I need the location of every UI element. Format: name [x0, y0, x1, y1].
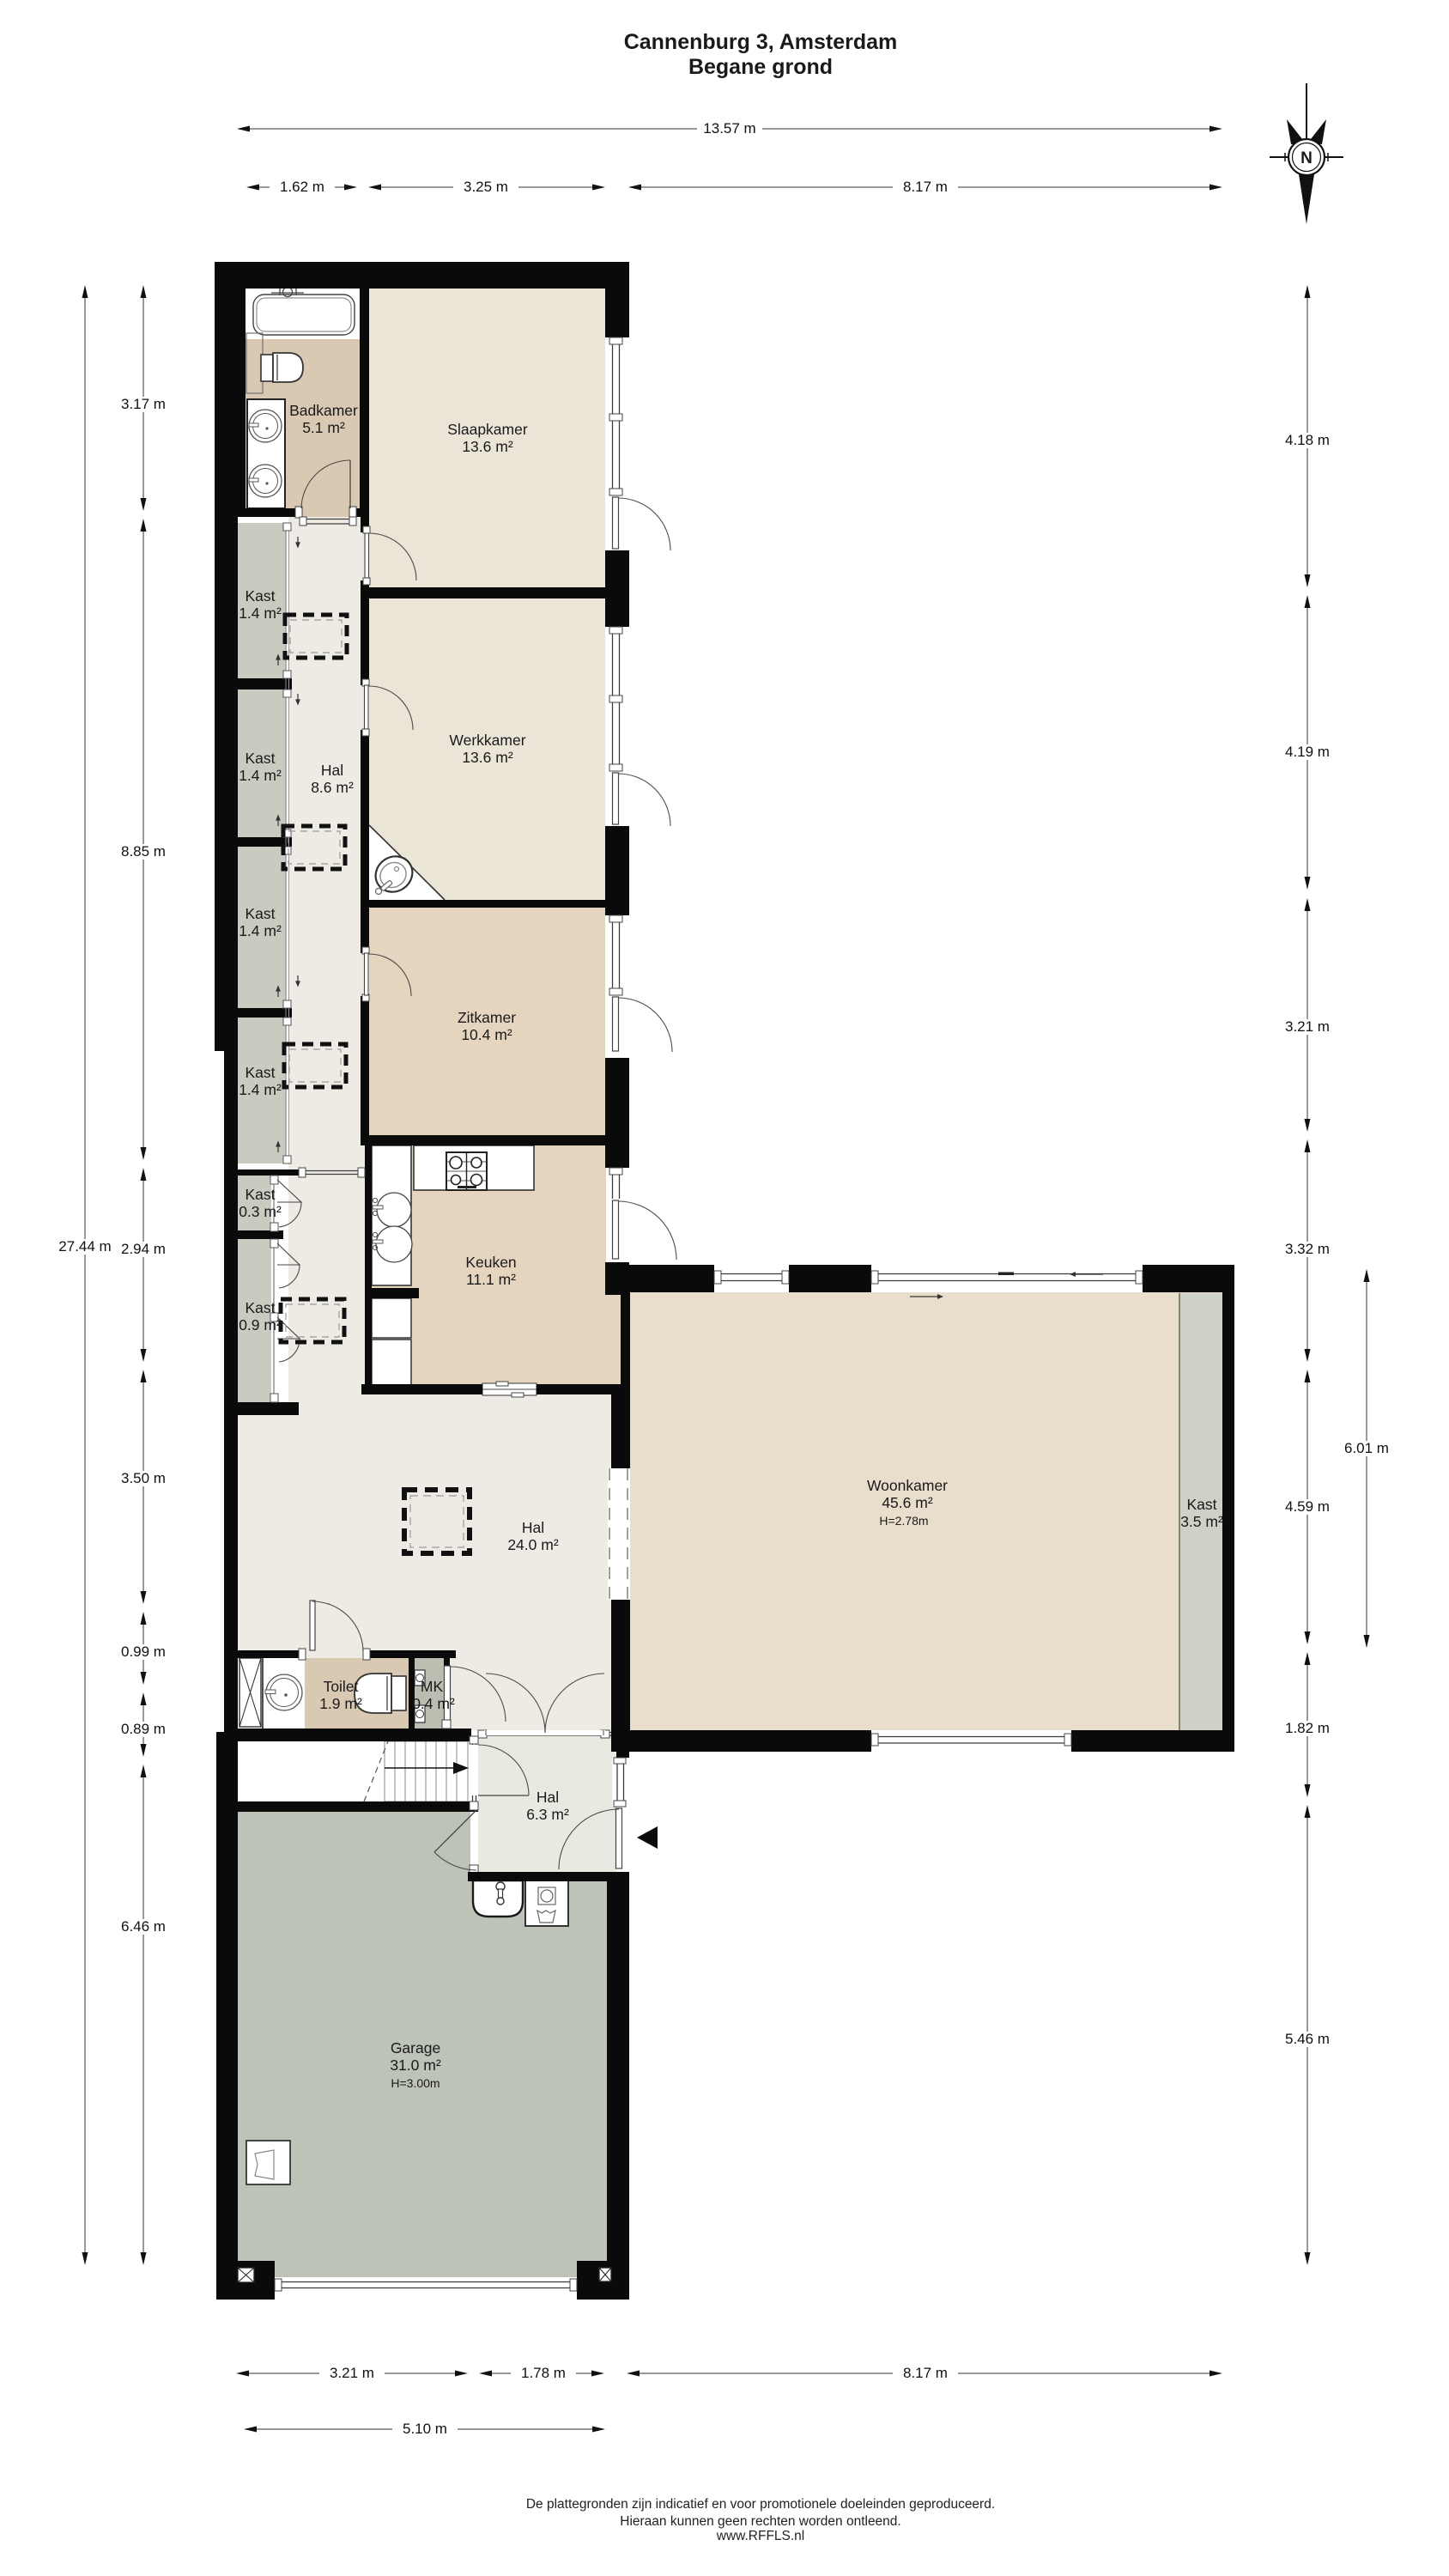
svg-text:Slaapkamer: Slaapkamer	[447, 421, 528, 438]
svg-text:5.10 m: 5.10 m	[403, 2421, 447, 2437]
svg-text:11.1 m²: 11.1 m²	[466, 1271, 516, 1288]
svg-text:1.9 m²: 1.9 m²	[319, 1695, 362, 1712]
svg-text:N: N	[1300, 149, 1313, 167]
svg-text:Woonkamer: Woonkamer	[867, 1477, 948, 1494]
svg-text:8.17 m: 8.17 m	[903, 2365, 948, 2381]
svg-text:Garage: Garage	[391, 2039, 440, 2057]
svg-text:8.6 m²: 8.6 m²	[311, 779, 354, 796]
svg-text:8.85 m: 8.85 m	[121, 843, 166, 860]
svg-text:Hal: Hal	[522, 1519, 544, 1536]
svg-text:De plattegronden zijn indicati: De plattegronden zijn indicatief en voor…	[526, 2497, 995, 2512]
svg-text:1.78 m: 1.78 m	[521, 2365, 566, 2381]
svg-text:3.25 m: 3.25 m	[464, 179, 508, 195]
svg-text:13.6 m²: 13.6 m²	[462, 438, 512, 455]
svg-text:5.46 m: 5.46 m	[1285, 2031, 1330, 2047]
svg-text:Cannenburg 3, Amsterdam: Cannenburg 3, Amsterdam	[624, 30, 898, 54]
svg-text:13.6 m²: 13.6 m²	[462, 749, 512, 766]
svg-text:Kast: Kast	[245, 1186, 275, 1203]
svg-text:Toilet: Toilet	[324, 1678, 359, 1695]
svg-text:2.94 m: 2.94 m	[121, 1241, 166, 1257]
svg-text:3.5 m²: 3.5 m²	[1180, 1513, 1223, 1530]
svg-text:3.21 m: 3.21 m	[330, 2365, 374, 2381]
svg-text:Kast: Kast	[245, 1064, 275, 1081]
svg-text:13.57 m: 13.57 m	[703, 120, 755, 137]
svg-text:8.17 m: 8.17 m	[903, 179, 948, 195]
svg-text:Begane grond: Begane grond	[688, 55, 833, 79]
svg-text:0.99 m: 0.99 m	[121, 1643, 166, 1660]
svg-text:MK: MK	[421, 1678, 444, 1695]
svg-text:4.18 m: 4.18 m	[1285, 432, 1330, 448]
svg-text:3.21 m: 3.21 m	[1285, 1018, 1330, 1035]
svg-text:0.4 m²: 0.4 m²	[412, 1695, 455, 1712]
svg-text:0.3 m²: 0.3 m²	[239, 1203, 282, 1220]
svg-text:27.44 m: 27.44 m	[58, 1238, 111, 1255]
svg-text:Werkkamer: Werkkamer	[449, 732, 525, 749]
svg-text:1.4 m²: 1.4 m²	[239, 605, 282, 622]
svg-text:6.3 m²: 6.3 m²	[526, 1806, 569, 1823]
svg-text:31.0 m²: 31.0 m²	[390, 2057, 440, 2074]
svg-text:Keuken: Keuken	[465, 1254, 516, 1271]
svg-text:4.19 m: 4.19 m	[1285, 744, 1330, 760]
svg-text:3.32 m: 3.32 m	[1285, 1241, 1330, 1257]
svg-text:1.4 m²: 1.4 m²	[239, 1081, 282, 1098]
svg-text:5.1 m²: 5.1 m²	[302, 419, 345, 436]
svg-text:6.01 m: 6.01 m	[1344, 1440, 1389, 1456]
svg-text:1.82 m: 1.82 m	[1285, 1720, 1330, 1736]
svg-text:0.89 m: 0.89 m	[121, 1721, 166, 1737]
svg-text:Kast: Kast	[245, 587, 275, 605]
svg-text:3.50 m: 3.50 m	[121, 1470, 166, 1486]
svg-text:3.17 m: 3.17 m	[121, 396, 166, 412]
svg-text:Hieraan kunnen geen rechten wo: Hieraan kunnen geen rechten worden ontle…	[620, 2514, 900, 2529]
svg-text:Kast: Kast	[245, 750, 275, 767]
svg-text:4.59 m: 4.59 m	[1285, 1498, 1330, 1515]
svg-text:1.62 m: 1.62 m	[280, 179, 324, 195]
svg-text:Kast: Kast	[245, 905, 275, 922]
svg-text:1.4 m²: 1.4 m²	[239, 922, 282, 939]
svg-text:H=2.78m: H=2.78m	[879, 1514, 928, 1528]
svg-text:1.4 m²: 1.4 m²	[239, 767, 282, 784]
svg-text:Hal: Hal	[537, 1789, 559, 1806]
svg-text:24.0 m²: 24.0 m²	[507, 1536, 558, 1553]
svg-text:6.46 m: 6.46 m	[121, 1918, 166, 1935]
svg-text:10.4 m²: 10.4 m²	[461, 1026, 512, 1043]
svg-text:www.RFFLS.nl: www.RFFLS.nl	[716, 2529, 805, 2543]
svg-text:Kast: Kast	[245, 1299, 275, 1316]
svg-text:Zitkamer: Zitkamer	[458, 1009, 516, 1026]
svg-text:0.9 m²: 0.9 m²	[239, 1316, 282, 1334]
svg-text:Kast: Kast	[1186, 1496, 1216, 1513]
svg-text:H=3.00m: H=3.00m	[391, 2076, 440, 2090]
svg-text:Hal: Hal	[321, 762, 343, 779]
svg-text:45.6 m²: 45.6 m²	[882, 1494, 932, 1511]
svg-text:Badkamer: Badkamer	[289, 402, 358, 419]
